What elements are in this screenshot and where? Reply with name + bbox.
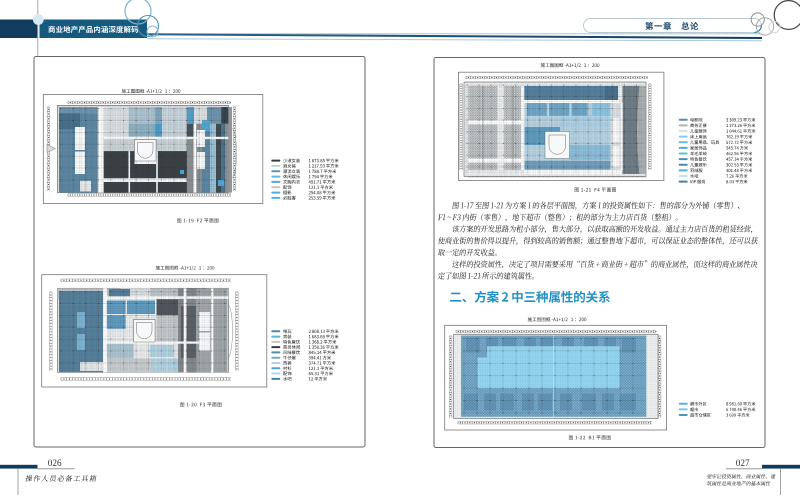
svg-text:027: 027 — [736, 458, 750, 468]
svg-text:026: 026 — [48, 458, 62, 468]
